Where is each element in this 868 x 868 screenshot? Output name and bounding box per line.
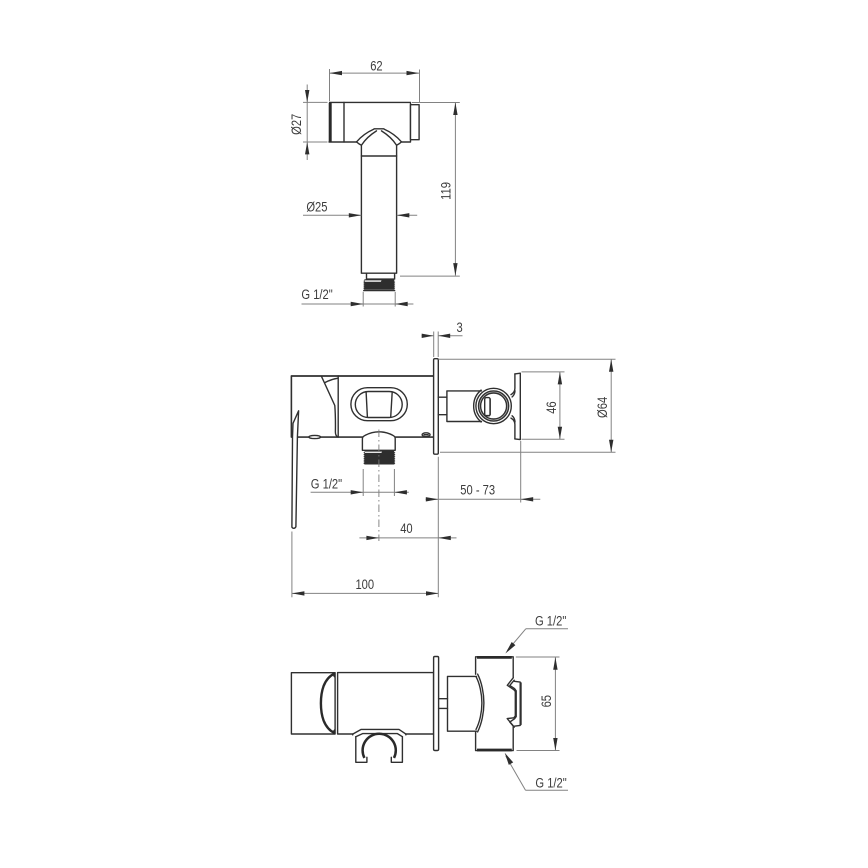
svg-text:Ø25: Ø25	[306, 199, 327, 214]
svg-text:50 - 73: 50 - 73	[460, 482, 495, 497]
svg-text:G 1/2": G 1/2"	[301, 287, 332, 302]
svg-text:Ø27: Ø27	[289, 114, 304, 135]
svg-text:100: 100	[355, 577, 374, 592]
svg-text:G 1/2": G 1/2"	[311, 476, 342, 491]
svg-text:Ø64: Ø64	[595, 397, 610, 418]
svg-text:G 1/2": G 1/2"	[535, 775, 566, 790]
svg-text:65: 65	[539, 695, 554, 707]
svg-text:119: 119	[439, 182, 454, 200]
svg-text:3: 3	[456, 320, 462, 335]
svg-text:G 1/2": G 1/2"	[535, 613, 566, 628]
svg-text:62: 62	[370, 58, 382, 73]
svg-text:40: 40	[400, 521, 412, 536]
svg-text:46: 46	[544, 401, 559, 413]
